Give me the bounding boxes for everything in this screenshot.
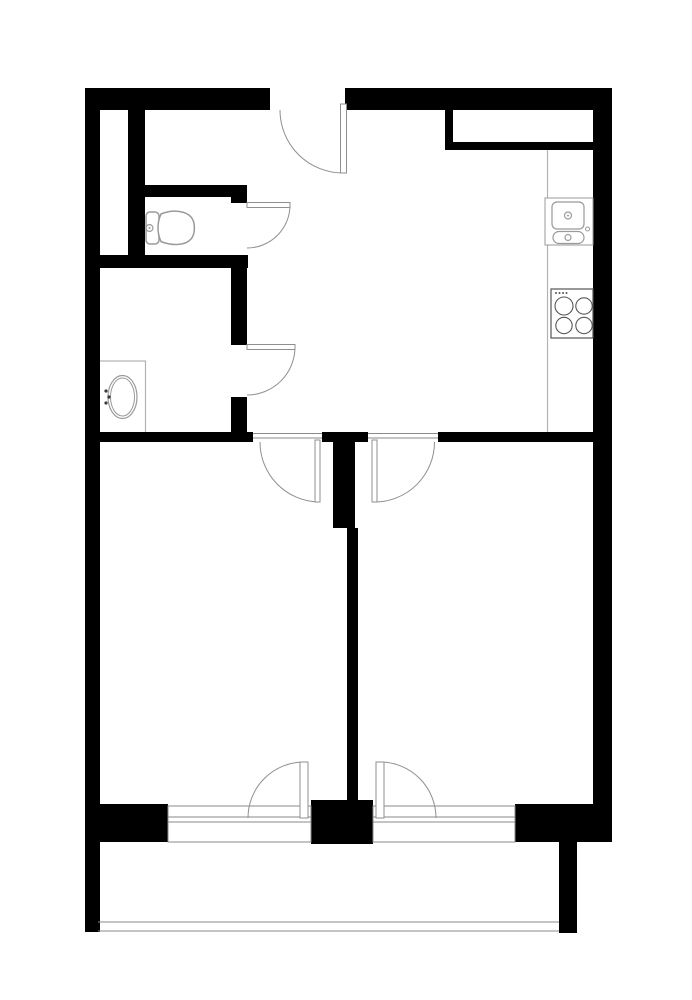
bottom-wall-pier <box>311 800 373 844</box>
right-outer-wall <box>593 110 612 842</box>
stove-knob-4 <box>566 292 568 294</box>
bath-faucet-dot-2 <box>107 395 110 398</box>
stove-knob-1 <box>555 292 557 294</box>
bath-door-arc <box>247 347 295 395</box>
floor-plan-page <box>0 0 692 1000</box>
stove-burner-1 <box>555 297 573 315</box>
toilet-bowl <box>158 211 194 244</box>
balcony-right-door-leaf <box>376 762 384 818</box>
window-right-frame <box>373 806 515 842</box>
bath-door-leaf <box>247 345 295 350</box>
balcony-right-wall <box>559 842 577 933</box>
divider-wall-mid <box>322 432 368 442</box>
stove-burner-4 <box>576 317 592 333</box>
kitchen-sink-drain-dot <box>567 215 569 217</box>
bath-faucet-dot-3 <box>104 401 107 404</box>
niche-bottom-wall <box>445 142 595 150</box>
divider-wall-right <box>438 432 595 442</box>
center-wall-upper <box>333 442 355 528</box>
bath-right-wall-lower <box>231 397 247 432</box>
bath-sink-outer <box>108 376 137 419</box>
stove-burner-2 <box>576 298 592 314</box>
entry-door-arc <box>280 110 344 173</box>
bottom-wall-left <box>85 804 168 842</box>
stove-knob-2 <box>559 292 561 294</box>
window-left-frame <box>168 806 311 842</box>
bedroom-left-door-leaf <box>315 440 320 502</box>
stove-knob-3 <box>562 292 564 294</box>
bath-faucet-dot-1 <box>104 389 107 392</box>
bedroom-left-door-arc <box>260 442 318 502</box>
bedroom-right-door-arc <box>375 442 435 502</box>
wc-door-arc <box>247 205 290 248</box>
divider-wall-left <box>85 432 253 442</box>
stove-burner-3 <box>556 317 572 333</box>
kitchen-sink-drain2 <box>565 235 571 241</box>
balcony-left-door-leaf <box>300 762 308 818</box>
bath-right-wall-upper <box>231 262 247 345</box>
top-wall-right <box>345 88 612 110</box>
kitchen-faucet <box>586 227 590 231</box>
wc-door-leaf <box>247 203 290 208</box>
bottom-wall-right <box>515 804 612 842</box>
bedroom-right-door-leaf <box>372 440 377 502</box>
balcony-left-wall <box>85 842 98 932</box>
top-wall-left <box>85 88 270 110</box>
wc-bottom-wall <box>98 255 248 268</box>
center-wall-lower <box>347 528 358 805</box>
wc-door-stub <box>231 185 247 203</box>
wc-top-wall <box>128 185 231 197</box>
toilet-flush-dot <box>149 227 151 229</box>
entry-door-leaf <box>341 104 347 173</box>
floor-plan-drawing <box>0 0 692 1000</box>
